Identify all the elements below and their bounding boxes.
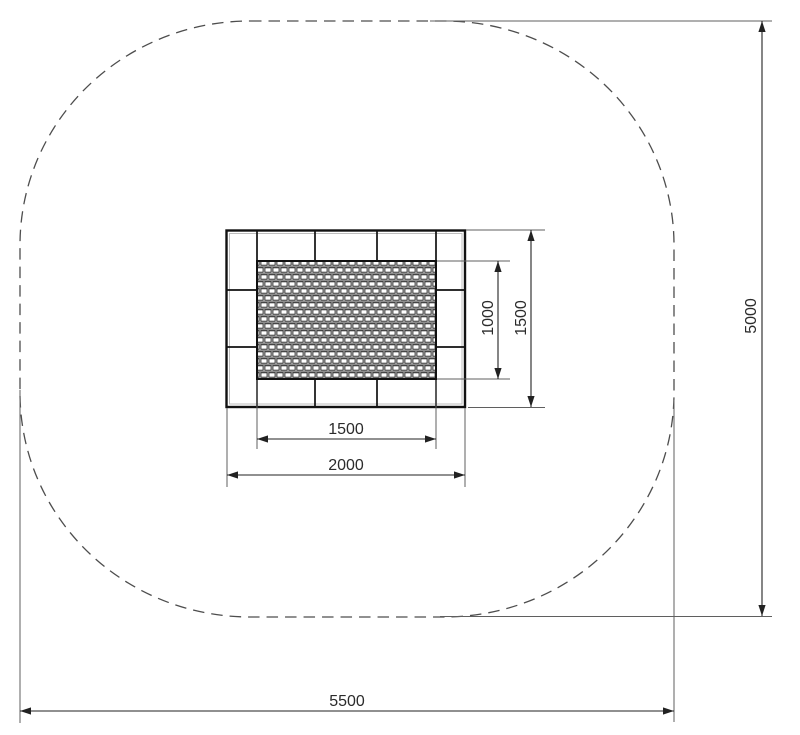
dim-label-mat-height: 1000 [480,300,497,336]
dim-zone-width: 5500 [20,693,674,711]
trampoline-frame [227,231,466,408]
dim-label-zone-width: 5500 [329,693,365,710]
dim-mat-width: 1500 [257,421,436,439]
dim-frame-width: 2000 [227,457,465,475]
drawing-canvas: 1500 2000 1000 1500 5000 5500 [0,0,800,735]
dim-mat-height: 1000 [480,261,498,379]
dim-frame-height: 1500 [513,230,531,407]
trampoline-mat [257,261,436,379]
dim-label-frame-height: 1500 [513,300,530,336]
dim-label-mat-width: 1500 [328,421,364,438]
dim-label-frame-width: 2000 [328,457,364,474]
dim-label-zone-height: 5000 [743,298,760,334]
trampoline-plan-drawing: 1500 2000 1000 1500 5000 5500 [0,0,800,735]
dim-zone-height: 5000 [743,21,762,616]
